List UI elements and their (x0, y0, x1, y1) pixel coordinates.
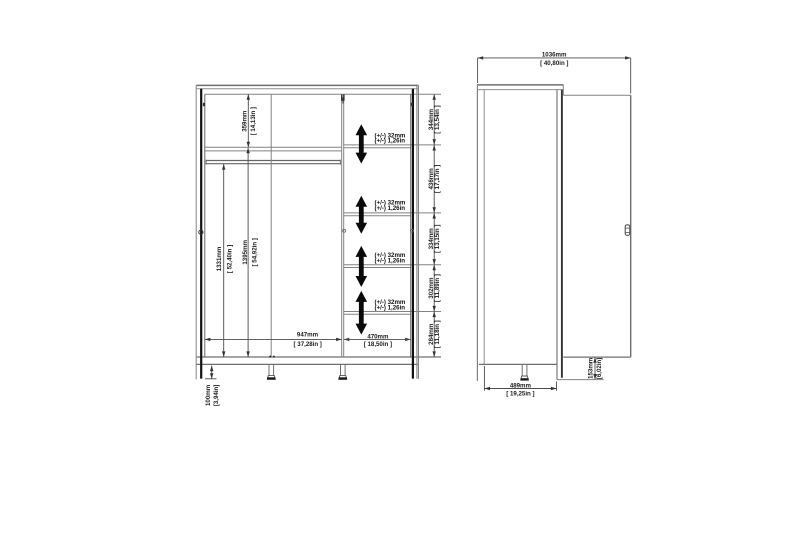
svg-text:[ 52,40in ]: [ 52,40in ] (227, 245, 234, 273)
svg-text:[ 19,25in ]: [ 19,25in ] (506, 391, 534, 398)
svg-text:470mm: 470mm (367, 333, 389, 340)
svg-text:[ 18,50in ]: [ 18,50in ] (364, 341, 392, 348)
svg-text:[6,02in]: [6,02in] (596, 358, 603, 380)
svg-text:100mm: 100mm (205, 384, 212, 406)
svg-text:[ 11,89in ]: [ 11,89in ] (434, 274, 441, 302)
svg-text:153mm: 153mm (588, 357, 595, 379)
svg-text:[ 54,92in ]: [ 54,92in ] (252, 238, 259, 266)
svg-text:[ 14,13in ]: [ 14,13in ] (250, 107, 257, 135)
svg-text:[ 13,54in ]: [ 13,54in ] (434, 105, 441, 133)
svg-text:[ 13,15in ]: [ 13,15in ] (434, 225, 441, 253)
svg-text:1395mm: 1395mm (242, 239, 249, 264)
svg-text:1331mm: 1331mm (216, 246, 223, 271)
svg-text:(+/-) 1,26in: (+/-) 1,26in (375, 138, 406, 145)
svg-text:(+/-) 1,26in: (+/-) 1,26in (375, 205, 406, 212)
svg-text:947mm: 947mm (297, 331, 319, 338)
svg-text:[ 40,80in ]: [ 40,80in ] (540, 60, 568, 67)
svg-text:[ 11,18in ]: [ 11,18in ] (434, 320, 441, 348)
svg-text:[ 37,28in ]: [ 37,28in ] (294, 341, 322, 348)
svg-text:(+/-) 1,26in: (+/-) 1,26in (375, 305, 406, 312)
svg-text:[3,94in]: [3,94in] (213, 385, 220, 407)
svg-text:1036mm: 1036mm (542, 51, 567, 58)
svg-text:489mm: 489mm (510, 382, 532, 389)
svg-text:[ 17,17in ]: [ 17,17in ] (434, 165, 441, 193)
svg-text:359mm: 359mm (241, 110, 248, 132)
svg-text:(+/-) 1,26in: (+/-) 1,26in (375, 257, 406, 264)
